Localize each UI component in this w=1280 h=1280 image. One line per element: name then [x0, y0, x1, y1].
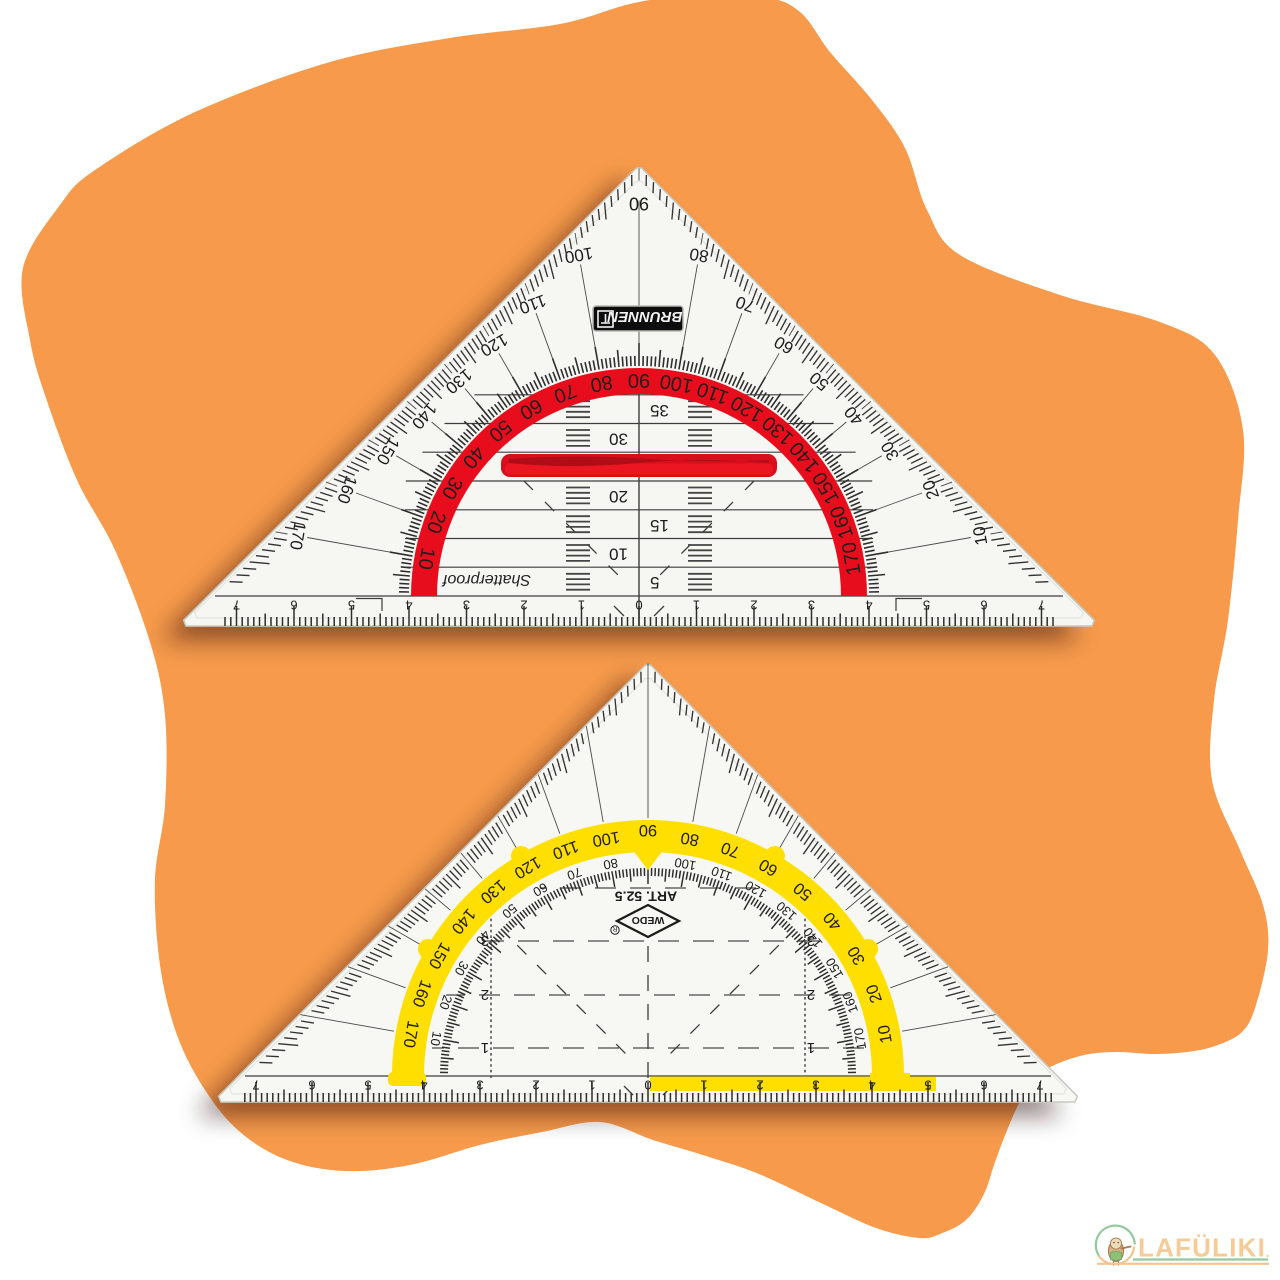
svg-text:10: 10	[413, 546, 439, 572]
svg-text:10: 10	[875, 1024, 896, 1045]
svg-text:1: 1	[693, 598, 700, 613]
svg-text:0: 0	[644, 1078, 651, 1093]
svg-text:1: 1	[807, 1039, 815, 1056]
svg-text:Shatterproof: Shatterproof	[441, 571, 531, 588]
svg-text:90: 90	[628, 369, 650, 391]
svg-text:7: 7	[1038, 598, 1045, 613]
svg-text:15: 15	[650, 516, 669, 535]
svg-text:2: 2	[481, 986, 489, 1003]
svg-text:4: 4	[868, 1078, 875, 1093]
svg-text:3: 3	[812, 1078, 819, 1093]
svg-text:7: 7	[252, 1078, 259, 1093]
svg-text:R: R	[612, 925, 617, 932]
svg-text:3: 3	[476, 1078, 483, 1093]
svg-text:1: 1	[588, 1078, 595, 1093]
svg-text:2: 2	[756, 1078, 763, 1093]
svg-text:WEDO: WEDO	[632, 914, 665, 926]
svg-text:5: 5	[364, 1078, 371, 1093]
svg-text:10: 10	[609, 545, 628, 564]
svg-text:7: 7	[1036, 1078, 1043, 1093]
svg-text:35: 35	[650, 401, 669, 420]
svg-text:5: 5	[923, 598, 930, 613]
svg-text:5: 5	[924, 1078, 931, 1093]
svg-text:3: 3	[463, 598, 470, 613]
svg-text:6: 6	[308, 1078, 315, 1093]
svg-text:7: 7	[233, 598, 240, 613]
svg-text:4: 4	[420, 1078, 427, 1093]
svg-text:30: 30	[609, 430, 628, 449]
svg-text:80: 80	[602, 855, 619, 872]
svg-text:90: 90	[639, 821, 657, 839]
svg-text:3: 3	[808, 598, 815, 613]
svg-text:2: 2	[520, 598, 527, 613]
svg-text:LAFÜLIKI: LAFÜLIKI	[1138, 1233, 1266, 1263]
svg-text:2: 2	[532, 1078, 539, 1093]
svg-text:2: 2	[807, 986, 815, 1003]
svg-text:BRUNNEN: BRUNNEN	[606, 308, 682, 325]
svg-text:2: 2	[750, 598, 757, 613]
svg-text:90: 90	[629, 194, 649, 214]
svg-text:80: 80	[589, 370, 615, 396]
svg-text:6: 6	[980, 598, 987, 613]
svg-text:80: 80	[679, 828, 700, 849]
svg-text:20: 20	[609, 487, 628, 506]
svg-text:1: 1	[578, 598, 585, 613]
svg-text:5: 5	[650, 573, 659, 592]
svg-text:0: 0	[635, 598, 642, 613]
svg-text:5: 5	[348, 598, 355, 613]
svg-text:1: 1	[481, 1039, 489, 1056]
svg-text:1: 1	[700, 1078, 707, 1093]
svg-text:ART. 52.5: ART. 52.5	[615, 889, 677, 905]
svg-text:6: 6	[290, 598, 297, 613]
svg-text:4: 4	[405, 598, 412, 613]
svg-text:6: 6	[980, 1078, 987, 1093]
svg-text:10: 10	[427, 1030, 444, 1047]
svg-text:4: 4	[865, 598, 872, 613]
